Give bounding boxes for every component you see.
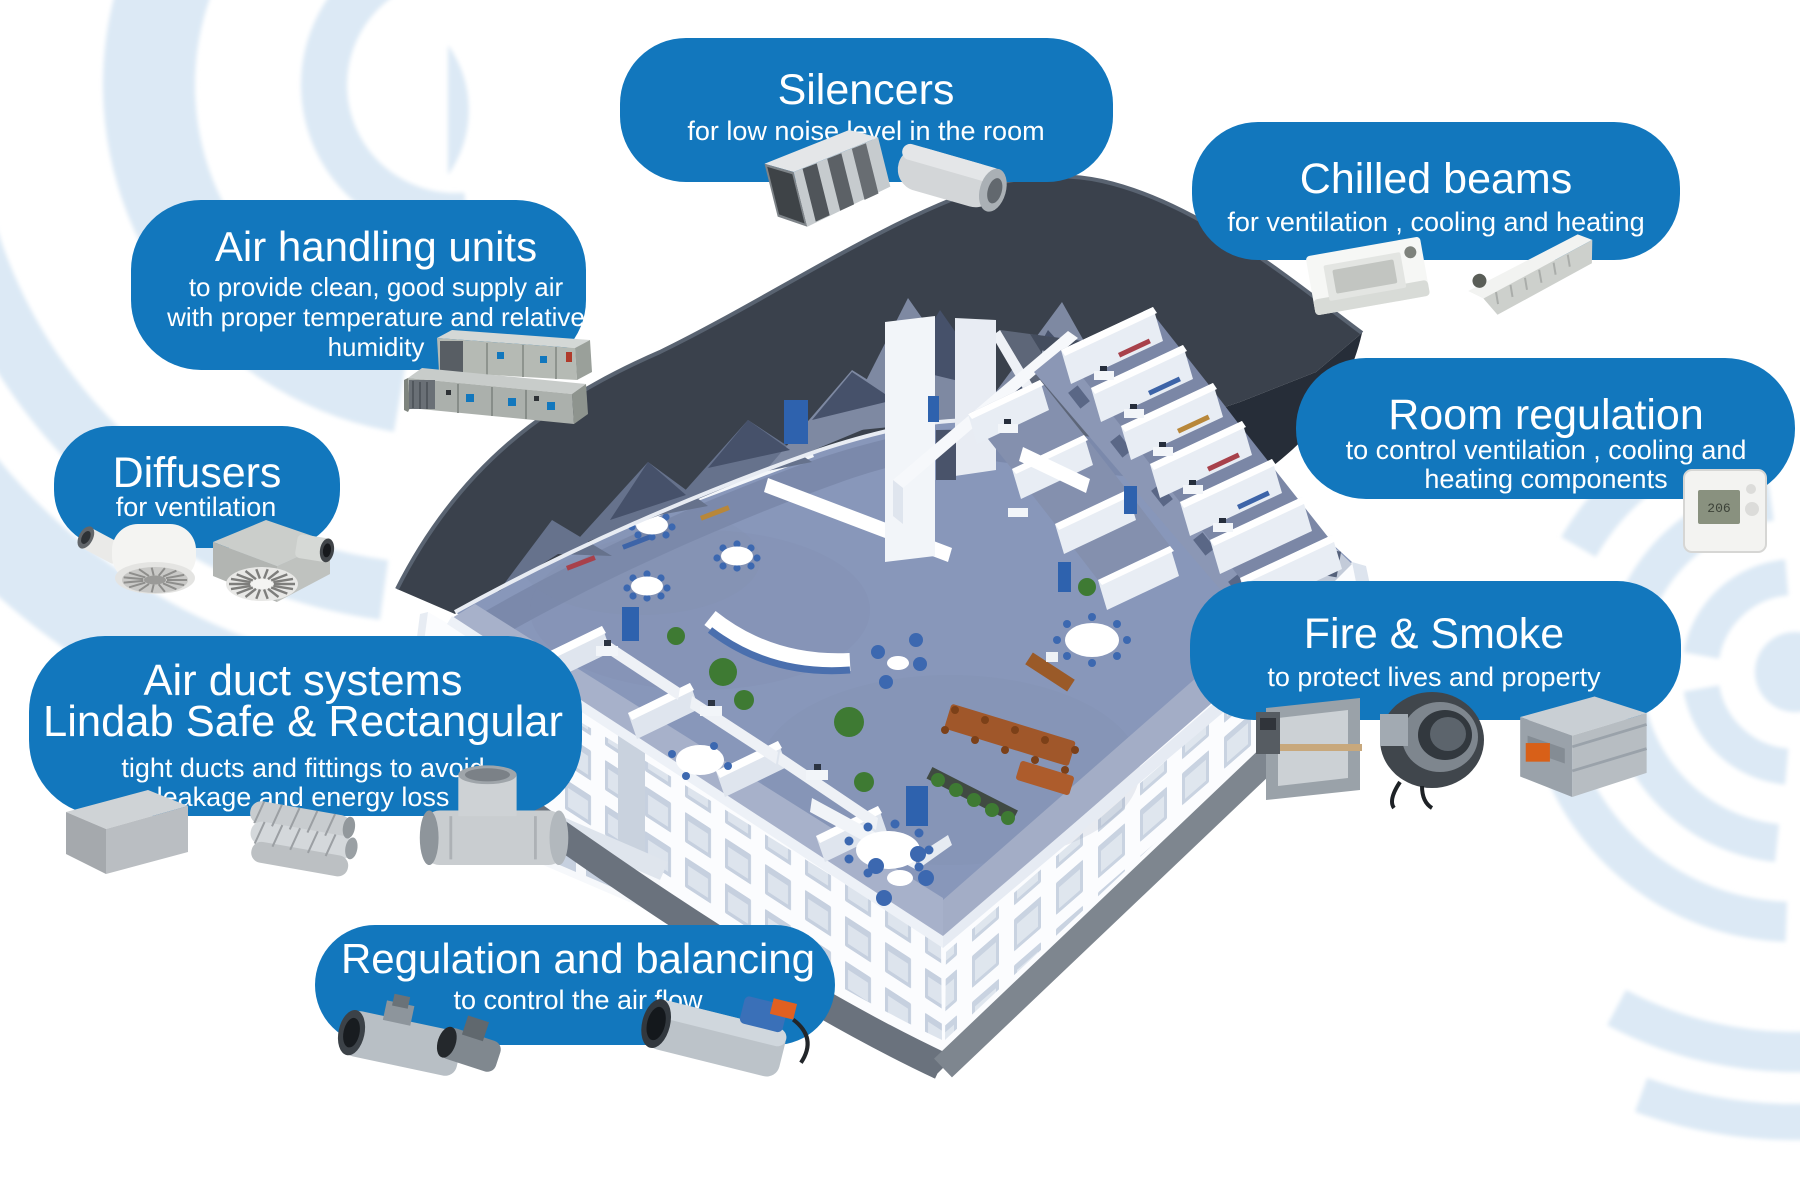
svg-text:Lindab Safe & Rectangular: Lindab Safe & Rectangular xyxy=(43,698,563,746)
svg-text:206: 206 xyxy=(1707,501,1730,516)
svg-text:Silencers: Silencers xyxy=(778,66,955,114)
svg-text:Regulation and balancing: Regulation and balancing xyxy=(341,935,815,982)
svg-text:to control ventilation , cooli: to control ventilation , cooling and xyxy=(1346,435,1747,465)
svg-text:heating components: heating components xyxy=(1424,464,1667,494)
svg-text:Fire & Smoke: Fire & Smoke xyxy=(1304,610,1564,658)
svg-text:for ventilation , cooling and: for ventilation , cooling and heating xyxy=(1227,207,1644,237)
svg-text:Chilled beams: Chilled beams xyxy=(1300,155,1572,203)
svg-text:tight ducts and fittings to av: tight ducts and fittings to avoid xyxy=(121,753,484,783)
svg-text:to protect lives and property: to protect lives and property xyxy=(1267,662,1601,692)
svg-text:leakage and energy loss: leakage and energy loss xyxy=(157,782,450,812)
svg-text:Diffusers: Diffusers xyxy=(113,449,282,497)
svg-text:Room regulation: Room regulation xyxy=(1388,391,1704,439)
svg-text:with proper temperature and re: with proper temperature and relative xyxy=(166,302,585,332)
svg-text:for ventilation: for ventilation xyxy=(116,492,277,522)
svg-text:to provide clean, good supply: to provide clean, good supply air xyxy=(189,272,564,302)
svg-text:Air handling units: Air handling units xyxy=(215,223,537,270)
svg-text:humidity: humidity xyxy=(328,332,425,362)
